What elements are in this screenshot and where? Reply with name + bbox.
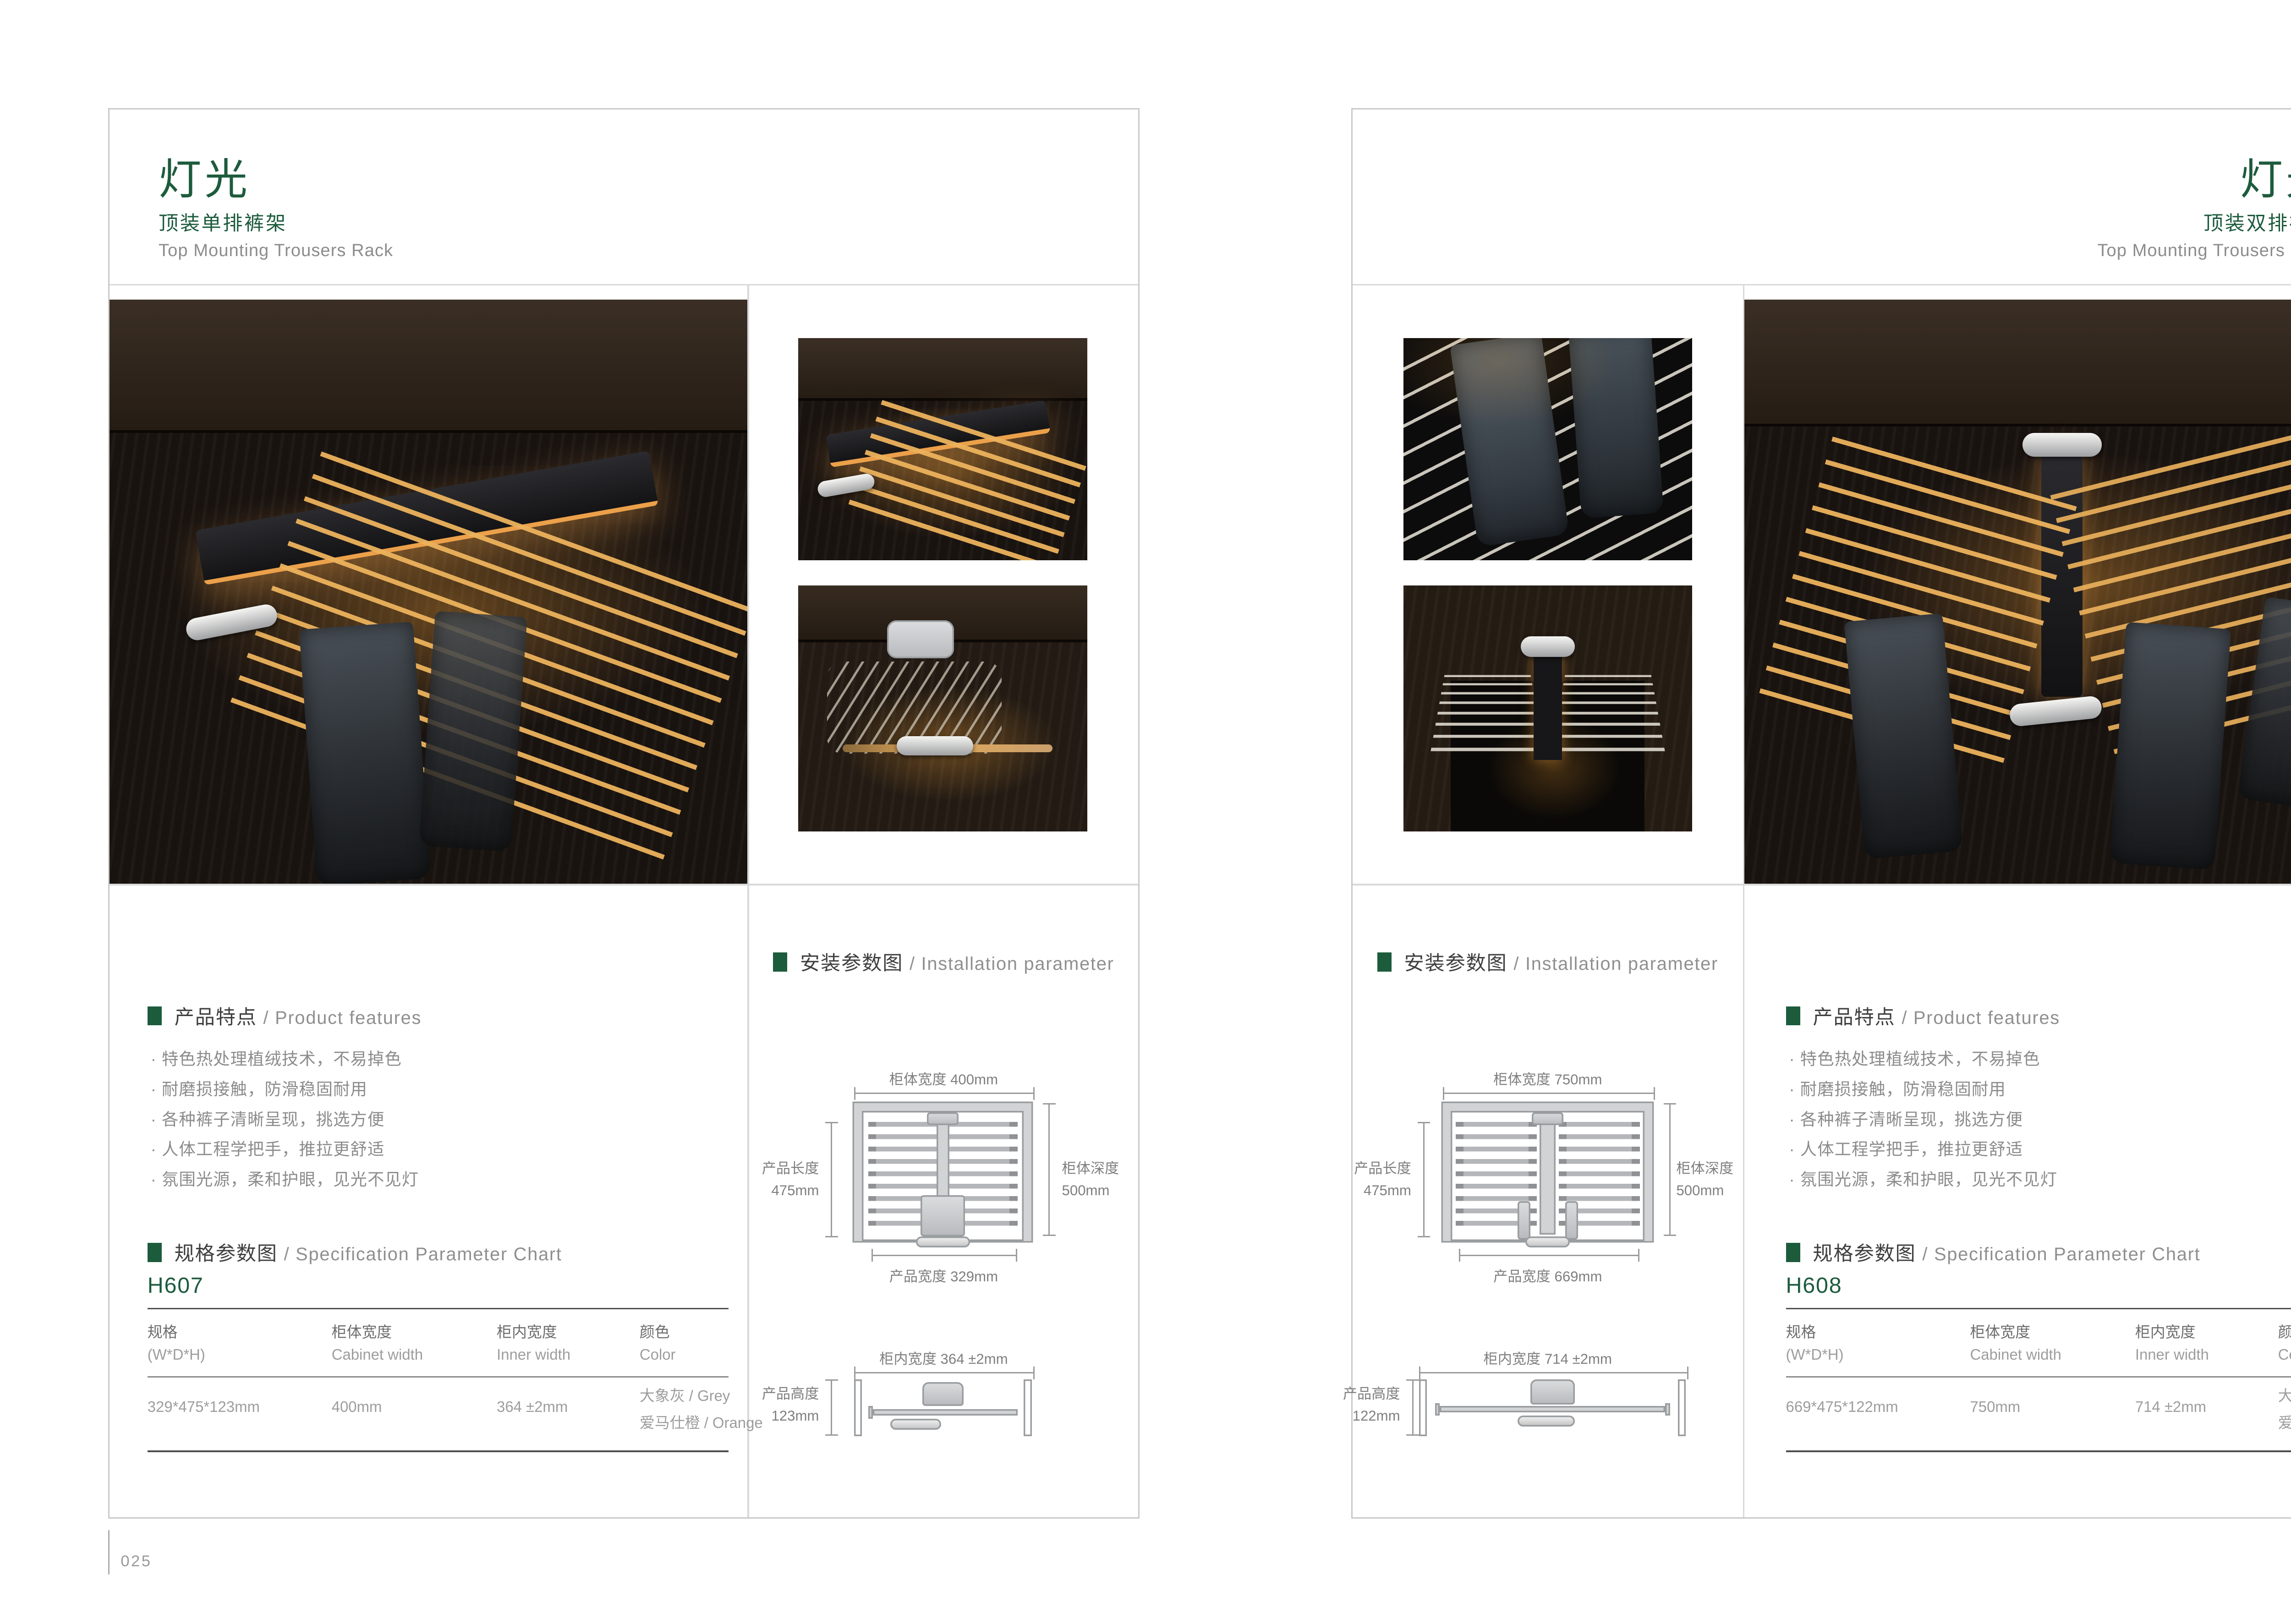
- feature-text: 耐磨损接触，防滑稳固耐用: [162, 1080, 367, 1099]
- feature-text: 各种裤子清晰呈现，挑选方便: [162, 1110, 384, 1129]
- col-header-cn: 柜内宽度: [2135, 1320, 2196, 1342]
- main-product-photo: [110, 300, 748, 884]
- dim-product-length-label: 产品长度: [721, 1157, 819, 1177]
- page-number-left: 025: [121, 1553, 152, 1570]
- rack-handle-front: [890, 1419, 941, 1430]
- features-heading-cn: 产品特点: [1813, 1006, 1895, 1028]
- rail-cap: [927, 1112, 959, 1125]
- feature-item: · 氛围光源，柔和护眼，见光不见灯: [1789, 1166, 2057, 1190]
- bullet-icon: ·: [1789, 1050, 1795, 1068]
- spec-heading: 规格参数图 / Specification Parameter Chart: [1786, 1238, 2201, 1266]
- column-divider: [1743, 284, 1744, 1517]
- bullet-icon: ·: [1789, 1080, 1795, 1099]
- detail-photo-rack: [798, 338, 1087, 560]
- wardrobe-shelf: [798, 338, 1087, 401]
- page-right: 灯光 顶装双排裤架 Top Mounting Trousers Rack: [1351, 108, 2291, 1519]
- features-heading: 产品特点 / Product features: [1786, 1001, 2060, 1030]
- dim-product-height-label: 产品高度: [1340, 1382, 1400, 1403]
- col-header-en: Color: [2278, 1346, 2291, 1363]
- features-heading-en: / Product features: [263, 1008, 422, 1028]
- cell-color-grey: 大象灰 / Grey: [2278, 1384, 2291, 1405]
- cabinet-panel: [1678, 1379, 1686, 1437]
- bullet-icon: ·: [1789, 1140, 1795, 1159]
- installation-heading-en: / Installation parameter: [910, 954, 1114, 974]
- cell-size: 669*475*122mm: [1786, 1398, 1898, 1416]
- section-marker-icon: [1786, 1006, 1800, 1026]
- motor-cap: [1525, 1236, 1570, 1247]
- bullet-icon: ·: [151, 1110, 157, 1129]
- installation-heading-cn: 安装参数图: [1404, 952, 1507, 974]
- feature-text: 特色热处理植绒技术，不易掉色: [162, 1050, 402, 1068]
- wardrobe-shelf: [1743, 300, 2291, 426]
- col-header-cn: 柜内宽度: [497, 1320, 557, 1342]
- bullet-icon: ·: [1789, 1110, 1795, 1129]
- installation-heading: 安装参数图 / Installation parameter: [749, 947, 1138, 976]
- feature-text: 人体工程学把手，推拉更舒适: [162, 1140, 384, 1159]
- dim-inner-width: 柜内宽度 364 ±2mm: [749, 1347, 1138, 1368]
- feature-item: · 氛围光源，柔和护眼，见光不见灯: [151, 1166, 419, 1190]
- page-title: 灯光: [159, 144, 251, 207]
- cell-inner-width: 364 ±2mm: [497, 1398, 568, 1416]
- cell-cabinet-width: 400mm: [332, 1398, 382, 1416]
- rack-rod-front: [873, 1409, 1017, 1416]
- col-header-cn: 柜体宽度: [1970, 1320, 2030, 1342]
- dim-product-height-value: 123mm: [721, 1408, 819, 1424]
- dimension-line: [1043, 1103, 1056, 1236]
- col-header-cn: 规格: [148, 1320, 178, 1342]
- table-rule: [148, 1450, 729, 1452]
- section-marker-icon: [1377, 952, 1392, 972]
- dim-cabinet-width: 柜体宽度 750mm: [1353, 1068, 1743, 1088]
- col-header-en: Color: [640, 1346, 676, 1363]
- mount-cap: [2022, 433, 2102, 457]
- dimension-line: [1419, 1367, 1688, 1379]
- dimension-line: [825, 1379, 838, 1436]
- header-divider: [110, 284, 1138, 285]
- cell-inner-width: 714 ±2mm: [2135, 1398, 2206, 1416]
- page-subtitle-cn: 顶装双排裤架: [2203, 208, 2291, 236]
- col-header-en: Cabinet width: [332, 1346, 423, 1363]
- page-subtitle-en: Top Mounting Trousers Rack: [159, 241, 393, 261]
- dim-cabinet-depth-label: 柜体深度: [1676, 1157, 1733, 1177]
- wardrobe-shelf: [110, 300, 748, 432]
- installation-heading-cn: 安装参数图: [800, 952, 903, 974]
- rack-handle-front: [1518, 1416, 1575, 1427]
- installation-heading-en: / Installation parameter: [1513, 954, 1718, 974]
- table-rule: [148, 1308, 729, 1309]
- feature-item: · 各种裤子清晰呈现，挑选方便: [1789, 1106, 2023, 1130]
- dim-product-height-value: 122mm: [1340, 1408, 1400, 1424]
- col-header-cn: 颜色: [2278, 1320, 2291, 1342]
- rack-rods: [1430, 675, 1545, 755]
- spec-heading-en: / Specification Parameter Chart: [284, 1244, 562, 1264]
- feature-item: · 耐磨损接触，防滑稳固耐用: [1789, 1076, 2006, 1100]
- mount-cap: [1521, 636, 1575, 657]
- feature-text: 人体工程学把手，推拉更舒适: [1800, 1140, 2023, 1159]
- model-number: H608: [1786, 1273, 1842, 1298]
- col-header-cn: 规格: [1786, 1320, 1816, 1342]
- feature-item: · 特色热处理植绒技术，不易掉色: [151, 1046, 402, 1070]
- section-marker-icon: [148, 1243, 162, 1262]
- cell-color-orange: 爱马仕橙 / Orange: [2278, 1411, 2291, 1433]
- section-divider: [1353, 884, 2291, 885]
- section-divider: [110, 884, 1138, 885]
- bullet-icon: ·: [151, 1140, 157, 1159]
- feature-item: · 人体工程学把手，推拉更舒适: [151, 1136, 385, 1160]
- catalog-spread: 灯光 顶装单排裤架 Top Mounting Trousers Rack: [0, 0, 2291, 1624]
- dim-product-width: 产品宽度 329mm: [749, 1265, 1138, 1285]
- bullet-icon: ·: [151, 1170, 157, 1189]
- dim-cabinet-depth-label: 柜体深度: [1062, 1157, 1119, 1177]
- motor-box: [921, 1195, 965, 1236]
- dim-cabinet-width: 柜体宽度 400mm: [749, 1068, 1138, 1088]
- rail-cap: [1532, 1112, 1563, 1125]
- detail-photo-trousers: [1403, 338, 1693, 560]
- bullet-icon: ·: [1789, 1170, 1795, 1189]
- bracket-plate: [1518, 1201, 1530, 1239]
- dimension-line: [1443, 1087, 1655, 1100]
- dim-product-height-label: 产品高度: [721, 1382, 819, 1403]
- column-divider: [747, 284, 749, 1517]
- hanging-trousers: [419, 611, 527, 852]
- main-product-photo: [1743, 300, 2291, 884]
- mount-box: [887, 620, 954, 658]
- rack-rods: [1551, 675, 1666, 755]
- page-left: 灯光 顶装单排裤架 Top Mounting Trousers Rack: [108, 108, 1140, 1519]
- spec-heading-en: / Specification Parameter Chart: [1922, 1244, 2200, 1264]
- cell-cabinet-width: 750mm: [1970, 1398, 2020, 1416]
- col-header-cn: 柜体宽度: [332, 1320, 392, 1342]
- light-glow: [1403, 338, 1626, 433]
- bullet-icon: ·: [151, 1050, 157, 1068]
- hanging-trousers: [2110, 622, 2231, 869]
- table-rule: [148, 1376, 729, 1378]
- feature-text: 耐磨损接触，防滑稳固耐用: [1800, 1080, 2006, 1099]
- page-subtitle-cn: 顶装单排裤架: [159, 208, 287, 236]
- col-header-en: Inner width: [2135, 1346, 2209, 1363]
- hanging-trousers: [299, 622, 431, 884]
- feature-text: 各种裤子清晰呈现，挑选方便: [1800, 1110, 2023, 1129]
- table-rule: [1786, 1376, 2291, 1378]
- dimension-line: [854, 1367, 1035, 1379]
- col-header-en: (W*D*H): [148, 1346, 205, 1363]
- model-number: H607: [148, 1273, 204, 1298]
- feature-item: · 人体工程学把手，推拉更舒适: [1789, 1136, 2023, 1160]
- bracket-plate: [1565, 1201, 1578, 1239]
- installation-heading: 安装参数图 / Installation parameter: [1353, 947, 1743, 976]
- mount-box: [922, 1382, 964, 1406]
- dimension-line: [1459, 1249, 1639, 1262]
- dim-product-width: 产品宽度 669mm: [1353, 1265, 1743, 1285]
- dimension-line: [1418, 1122, 1431, 1237]
- page-number-tick: [108, 1530, 110, 1575]
- page-number-right: 026: [2274, 1553, 2291, 1570]
- dimension-line: [1406, 1379, 1419, 1436]
- features-heading-cn: 产品特点: [175, 1006, 257, 1028]
- table-rule: [1786, 1450, 2291, 1452]
- col-header-en: Cabinet width: [1970, 1346, 2061, 1363]
- features-heading: 产品特点 / Product features: [148, 1001, 422, 1030]
- center-rail: [1534, 652, 1562, 760]
- cell-size: 329*475*123mm: [148, 1398, 260, 1416]
- section-marker-icon: [148, 1006, 162, 1026]
- rod-end-cap: [1435, 1403, 1440, 1416]
- col-header-cn: 颜色: [640, 1320, 670, 1342]
- mount-box: [1530, 1379, 1575, 1405]
- dim-product-length-label: 产品长度: [1353, 1157, 1411, 1177]
- feature-text: 氛围光源，柔和护眼，见光不见灯: [1800, 1170, 2057, 1189]
- spec-heading-cn: 规格参数图: [175, 1243, 278, 1265]
- bullet-icon: ·: [151, 1080, 157, 1099]
- spec-heading: 规格参数图 / Specification Parameter Chart: [148, 1238, 562, 1266]
- page-title: 灯光: [2240, 144, 2291, 207]
- rack-rail-topview: [1540, 1112, 1556, 1235]
- page-subtitle-en: Top Mounting Trousers Rack: [2097, 241, 2291, 261]
- motor-cap: [916, 1236, 970, 1247]
- rack-handle: [897, 736, 973, 755]
- col-header-en: (W*D*H): [1786, 1346, 1844, 1363]
- col-header-en: Inner width: [497, 1346, 570, 1363]
- feature-item: · 各种裤子清晰呈现，挑选方便: [151, 1106, 385, 1130]
- rod-end-cap: [868, 1406, 873, 1419]
- dim-cabinet-depth-value: 500mm: [1676, 1182, 1724, 1199]
- spec-heading-cn: 规格参数图: [1813, 1243, 1916, 1265]
- dimension-line: [871, 1249, 1017, 1262]
- feature-text: 氛围光源，柔和护眼，见光不见灯: [162, 1170, 419, 1189]
- feature-item: · 特色热处理植绒技术，不易掉色: [1789, 1046, 2040, 1070]
- header-divider: [1353, 284, 2291, 285]
- section-marker-icon: [773, 952, 787, 972]
- dimension-line: [825, 1122, 838, 1237]
- dim-product-length-value: 475mm: [721, 1182, 819, 1199]
- detail-photo-topdown: [1403, 585, 1693, 831]
- feature-text: 特色热处理植绒技术，不易掉色: [1800, 1050, 2040, 1068]
- cell-color-grey: 大象灰 / Grey: [640, 1384, 730, 1405]
- feature-item: · 耐磨损接触，防滑稳固耐用: [151, 1076, 367, 1100]
- cabinet-panel: [854, 1379, 862, 1437]
- dim-product-length-value: 475mm: [1353, 1182, 1411, 1199]
- dim-inner-width: 柜内宽度 714 ±2mm: [1353, 1347, 1743, 1368]
- cabinet-panel: [1419, 1379, 1427, 1437]
- section-marker-icon: [1786, 1243, 1800, 1262]
- rod-end-cap: [1665, 1403, 1670, 1416]
- detail-photo-side: [798, 585, 1087, 831]
- cabinet-panel: [1024, 1379, 1031, 1437]
- dimension-line: [1664, 1103, 1677, 1236]
- rack-rod-front: [1440, 1406, 1665, 1412]
- dim-cabinet-depth-value: 500mm: [1062, 1182, 1110, 1199]
- table-rule: [1786, 1308, 2291, 1309]
- hanging-trousers: [1844, 613, 1962, 859]
- dimension-line: [854, 1087, 1035, 1100]
- features-heading-en: / Product features: [1902, 1008, 2060, 1028]
